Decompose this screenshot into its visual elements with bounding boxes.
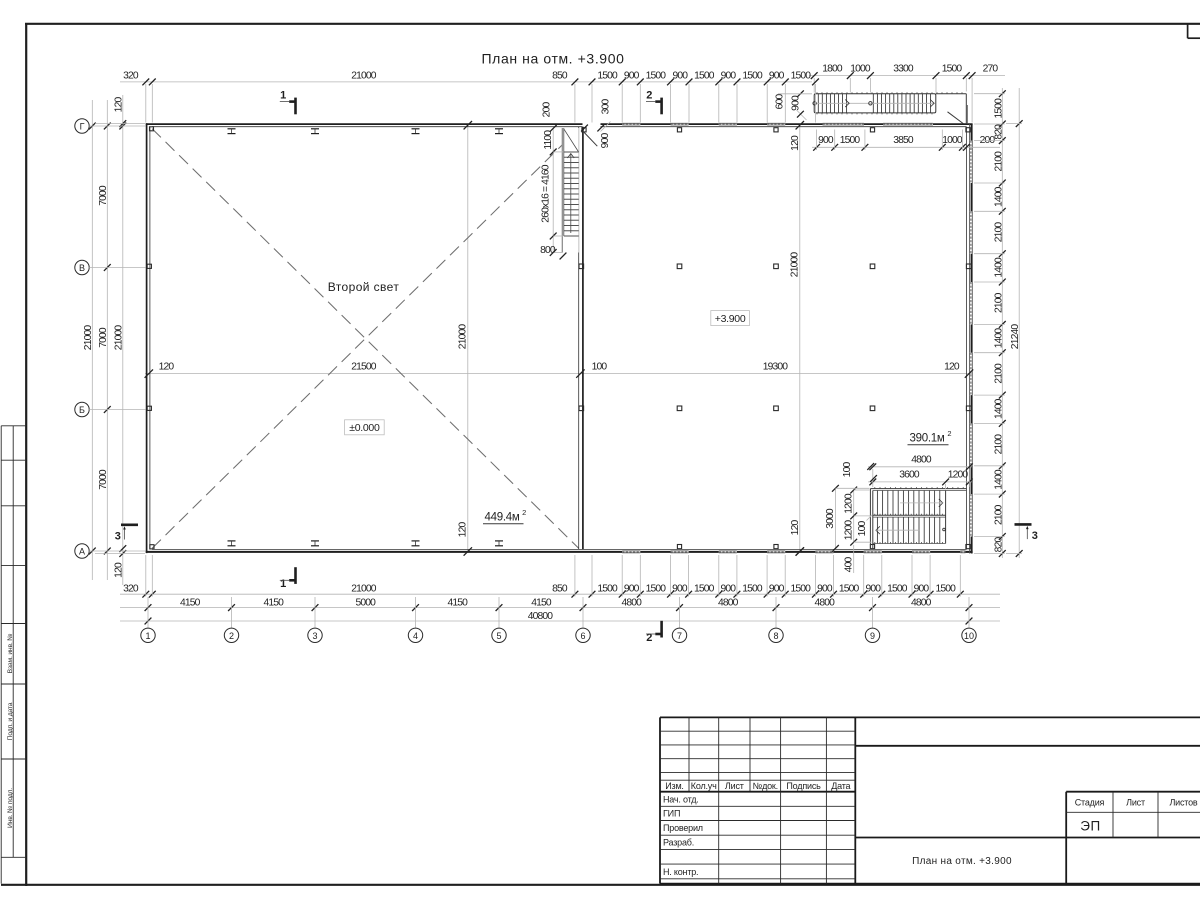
svg-text:4800: 4800 bbox=[911, 455, 932, 466]
svg-text:7000: 7000 bbox=[98, 185, 109, 206]
svg-text:Проверил: Проверил bbox=[663, 823, 703, 833]
svg-text:900: 900 bbox=[624, 71, 640, 82]
svg-text:900: 900 bbox=[672, 71, 688, 82]
svg-text:400: 400 bbox=[844, 557, 855, 573]
svg-text:±0.000: ±0.000 bbox=[349, 422, 380, 434]
svg-text:1500: 1500 bbox=[791, 71, 812, 82]
svg-text:План на отм. +3.900: План на отм. +3.900 bbox=[912, 856, 1012, 867]
svg-text:В: В bbox=[79, 263, 85, 273]
svg-text:1400: 1400 bbox=[994, 328, 1005, 349]
svg-text:Листов: Листов bbox=[1169, 798, 1197, 808]
svg-text:1500: 1500 bbox=[646, 71, 667, 82]
svg-text:21000: 21000 bbox=[114, 325, 125, 351]
svg-text:1100: 1100 bbox=[543, 130, 554, 150]
svg-text:3: 3 bbox=[312, 631, 317, 641]
svg-text:120: 120 bbox=[790, 135, 801, 151]
svg-text:40800: 40800 bbox=[528, 611, 554, 622]
svg-text:800: 800 bbox=[540, 245, 556, 256]
svg-text:200: 200 bbox=[542, 102, 553, 118]
svg-text:5000: 5000 bbox=[355, 598, 376, 609]
svg-text:А: А bbox=[79, 547, 85, 557]
svg-text:1500: 1500 bbox=[840, 135, 861, 146]
svg-text:21000: 21000 bbox=[83, 325, 94, 351]
svg-text:Разраб.: Разраб. bbox=[663, 837, 694, 847]
svg-text:120: 120 bbox=[457, 522, 468, 538]
svg-text:4150: 4150 bbox=[531, 598, 552, 609]
svg-text:Дата: Дата bbox=[831, 781, 850, 791]
svg-text:2100: 2100 bbox=[994, 222, 1005, 243]
svg-text:900: 900 bbox=[914, 583, 930, 594]
svg-text:План на отм. +3.900: План на отм. +3.900 bbox=[482, 51, 625, 67]
svg-text:1500: 1500 bbox=[742, 71, 763, 82]
svg-text:2: 2 bbox=[947, 429, 951, 438]
svg-text:№док.: №док. bbox=[753, 781, 778, 791]
svg-text:Подпись: Подпись bbox=[786, 781, 821, 791]
svg-text:Второй свет: Второй свет bbox=[328, 280, 400, 294]
svg-text:1400: 1400 bbox=[994, 469, 1005, 490]
svg-text:3: 3 bbox=[1032, 530, 1038, 542]
svg-text:900: 900 bbox=[624, 583, 640, 594]
svg-text:Кол.уч: Кол.уч bbox=[691, 781, 717, 791]
svg-text:900: 900 bbox=[721, 71, 737, 82]
svg-text:320: 320 bbox=[123, 71, 139, 82]
svg-text:1400: 1400 bbox=[994, 186, 1005, 207]
svg-text:100: 100 bbox=[592, 362, 608, 373]
svg-text:1500: 1500 bbox=[994, 98, 1005, 119]
svg-text:900: 900 bbox=[720, 583, 736, 594]
svg-text:900: 900 bbox=[818, 135, 834, 146]
svg-text:3300: 3300 bbox=[893, 64, 914, 75]
svg-text:1200: 1200 bbox=[948, 470, 969, 481]
svg-text:+3.900: +3.900 bbox=[715, 313, 746, 325]
svg-text:4150: 4150 bbox=[180, 598, 201, 609]
svg-text:1500: 1500 bbox=[742, 583, 763, 594]
svg-text:21500: 21500 bbox=[351, 362, 377, 373]
svg-text:3850: 3850 bbox=[893, 135, 914, 146]
svg-text:1500: 1500 bbox=[791, 583, 812, 594]
svg-text:Б: Б bbox=[79, 405, 85, 415]
svg-text:2100: 2100 bbox=[994, 434, 1005, 455]
svg-text:320: 320 bbox=[123, 583, 139, 594]
svg-text:260х16 = 4160: 260х16 = 4160 bbox=[540, 164, 551, 222]
svg-text:4: 4 bbox=[413, 631, 418, 641]
svg-text:4150: 4150 bbox=[263, 598, 284, 609]
svg-text:Изм.: Изм. bbox=[665, 781, 683, 791]
svg-text:21000: 21000 bbox=[789, 252, 800, 278]
svg-text:19300: 19300 bbox=[763, 362, 789, 373]
svg-text:449.4м: 449.4м bbox=[485, 512, 520, 524]
svg-text:5: 5 bbox=[496, 631, 501, 641]
svg-text:1800: 1800 bbox=[822, 64, 843, 75]
svg-text:7000: 7000 bbox=[98, 327, 109, 348]
svg-text:2100: 2100 bbox=[994, 151, 1005, 172]
svg-text:270: 270 bbox=[983, 64, 999, 75]
svg-text:300: 300 bbox=[600, 99, 611, 115]
svg-text:900: 900 bbox=[769, 583, 785, 594]
svg-text:4800: 4800 bbox=[911, 598, 932, 609]
svg-text:1: 1 bbox=[280, 89, 286, 101]
svg-text:1400: 1400 bbox=[994, 257, 1005, 278]
svg-text:2100: 2100 bbox=[994, 504, 1005, 525]
svg-text:2: 2 bbox=[522, 508, 526, 517]
svg-text:9: 9 bbox=[870, 631, 875, 641]
svg-text:4800: 4800 bbox=[814, 598, 835, 609]
svg-text:1500: 1500 bbox=[935, 583, 956, 594]
svg-text:1200: 1200 bbox=[844, 493, 855, 514]
svg-text:Г: Г bbox=[80, 122, 85, 132]
svg-text:120: 120 bbox=[114, 97, 125, 113]
svg-text:900: 900 bbox=[817, 583, 833, 594]
svg-text:120: 120 bbox=[944, 362, 960, 373]
svg-text:2100: 2100 bbox=[994, 292, 1005, 313]
svg-text:120: 120 bbox=[114, 562, 125, 578]
svg-text:4800: 4800 bbox=[621, 598, 642, 609]
svg-text:Лист: Лист bbox=[1126, 798, 1145, 808]
svg-text:21000: 21000 bbox=[351, 71, 377, 82]
svg-text:21000: 21000 bbox=[351, 583, 377, 594]
svg-text:3600: 3600 bbox=[899, 470, 920, 481]
svg-text:Взам. инв. №: Взам. инв. № bbox=[7, 634, 14, 674]
svg-text:2: 2 bbox=[646, 89, 652, 101]
svg-text:900: 900 bbox=[600, 133, 611, 149]
svg-text:2100: 2100 bbox=[994, 363, 1005, 384]
svg-text:1500: 1500 bbox=[694, 583, 715, 594]
svg-text:820: 820 bbox=[994, 537, 1005, 553]
svg-text:7: 7 bbox=[677, 631, 682, 641]
svg-text:820: 820 bbox=[994, 124, 1005, 140]
svg-text:3: 3 bbox=[115, 531, 121, 543]
svg-text:1500: 1500 bbox=[646, 583, 667, 594]
svg-text:21240: 21240 bbox=[1010, 324, 1021, 350]
svg-text:Подп. и дата: Подп. и дата bbox=[7, 702, 14, 740]
svg-text:1400: 1400 bbox=[994, 398, 1005, 419]
svg-text:100: 100 bbox=[842, 462, 853, 478]
svg-text:1500: 1500 bbox=[887, 583, 908, 594]
svg-text:1500: 1500 bbox=[839, 583, 860, 594]
svg-text:Инв. № подл.: Инв. № подл. bbox=[7, 788, 14, 828]
svg-text:1: 1 bbox=[145, 631, 150, 641]
svg-text:Нач. отд.: Нач. отд. bbox=[663, 794, 699, 804]
svg-text:1500: 1500 bbox=[597, 71, 618, 82]
svg-text:7000: 7000 bbox=[98, 469, 109, 490]
svg-text:900: 900 bbox=[865, 583, 881, 594]
svg-text:Лист: Лист bbox=[725, 781, 744, 791]
svg-text:Стадия: Стадия bbox=[1075, 798, 1105, 808]
svg-text:1000: 1000 bbox=[850, 64, 871, 75]
svg-text:900: 900 bbox=[769, 71, 785, 82]
svg-text:900: 900 bbox=[672, 583, 688, 594]
svg-text:900: 900 bbox=[790, 95, 801, 111]
svg-text:100: 100 bbox=[857, 521, 868, 537]
svg-text:6: 6 bbox=[580, 631, 585, 641]
svg-text:120: 120 bbox=[159, 362, 175, 373]
svg-text:850: 850 bbox=[552, 583, 568, 594]
svg-text:1500: 1500 bbox=[942, 64, 963, 75]
svg-text:4800: 4800 bbox=[718, 598, 739, 609]
svg-text:Н. контр.: Н. контр. bbox=[663, 867, 698, 877]
svg-text:8: 8 bbox=[773, 631, 778, 641]
svg-text:1500: 1500 bbox=[694, 71, 715, 82]
svg-text:ЭП: ЭП bbox=[1080, 819, 1100, 834]
svg-text:10: 10 bbox=[964, 631, 974, 641]
svg-text:390.1м: 390.1м bbox=[910, 433, 945, 445]
svg-text:1500: 1500 bbox=[597, 583, 618, 594]
svg-text:1200: 1200 bbox=[844, 520, 855, 541]
svg-text:2: 2 bbox=[229, 631, 234, 641]
svg-text:4150: 4150 bbox=[447, 598, 468, 609]
svg-text:ГИП: ГИП bbox=[663, 809, 680, 819]
svg-text:850: 850 bbox=[552, 71, 568, 82]
svg-text:1000: 1000 bbox=[942, 135, 963, 146]
svg-text:3000: 3000 bbox=[825, 508, 836, 529]
svg-text:120: 120 bbox=[790, 520, 801, 536]
svg-text:600: 600 bbox=[775, 94, 786, 110]
svg-text:21000: 21000 bbox=[457, 324, 468, 350]
